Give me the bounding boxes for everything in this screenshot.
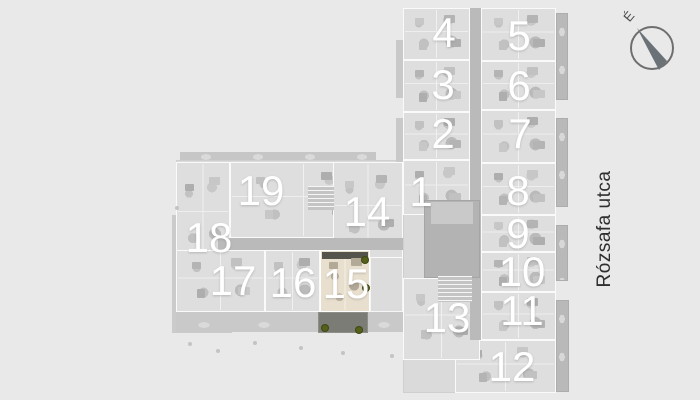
unit-number-label-13[interactable]: 13	[424, 297, 471, 339]
unit-number-label-16[interactable]: 16	[270, 262, 317, 304]
unit-number-label-4[interactable]: 4	[432, 12, 455, 54]
unit-number-label-8[interactable]: 8	[506, 170, 529, 212]
compass-needle-icon	[637, 28, 667, 70]
unit-number-label-2[interactable]: 2	[431, 113, 454, 155]
unit-number-label-6[interactable]: 6	[507, 65, 530, 107]
unit-number-label-11[interactable]: 11	[500, 290, 544, 332]
compass-north-letter: É	[620, 8, 637, 25]
unit-number-label-14[interactable]: 14	[344, 191, 391, 233]
site-plan-view: 19181417161543215678910111213 Rózsafa ut…	[0, 0, 700, 400]
unit-number-label-17[interactable]: 17	[210, 260, 257, 302]
unit-number-label-18[interactable]: 18	[186, 217, 233, 259]
unit-number-label-1[interactable]: 1	[409, 171, 432, 213]
unit-number-label-7[interactable]: 7	[508, 113, 531, 155]
unit-number-label-5[interactable]: 5	[507, 15, 530, 57]
compass-north-indicator: É	[616, 2, 688, 86]
unit-number-label-15[interactable]: 15	[323, 263, 370, 305]
unit-number-label-12[interactable]: 12	[489, 346, 536, 388]
unit-number-label-3[interactable]: 3	[431, 64, 454, 106]
street-label: Rózsafa utca	[592, 144, 618, 314]
unit-number-label-19[interactable]: 19	[238, 170, 285, 212]
